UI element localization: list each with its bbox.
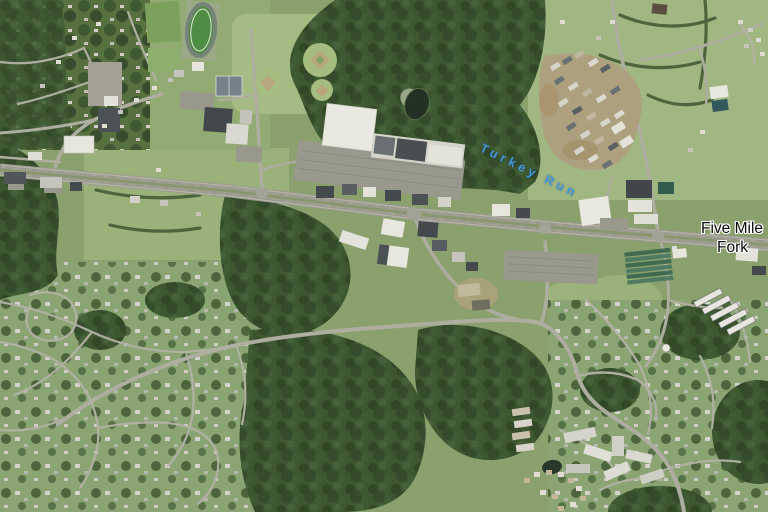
aerial-map-viewport[interactable]: Turkey Run Five Mile Fork (0, 0, 768, 512)
photo-tone-overlay (0, 0, 768, 512)
aerial-imagery (0, 0, 768, 512)
